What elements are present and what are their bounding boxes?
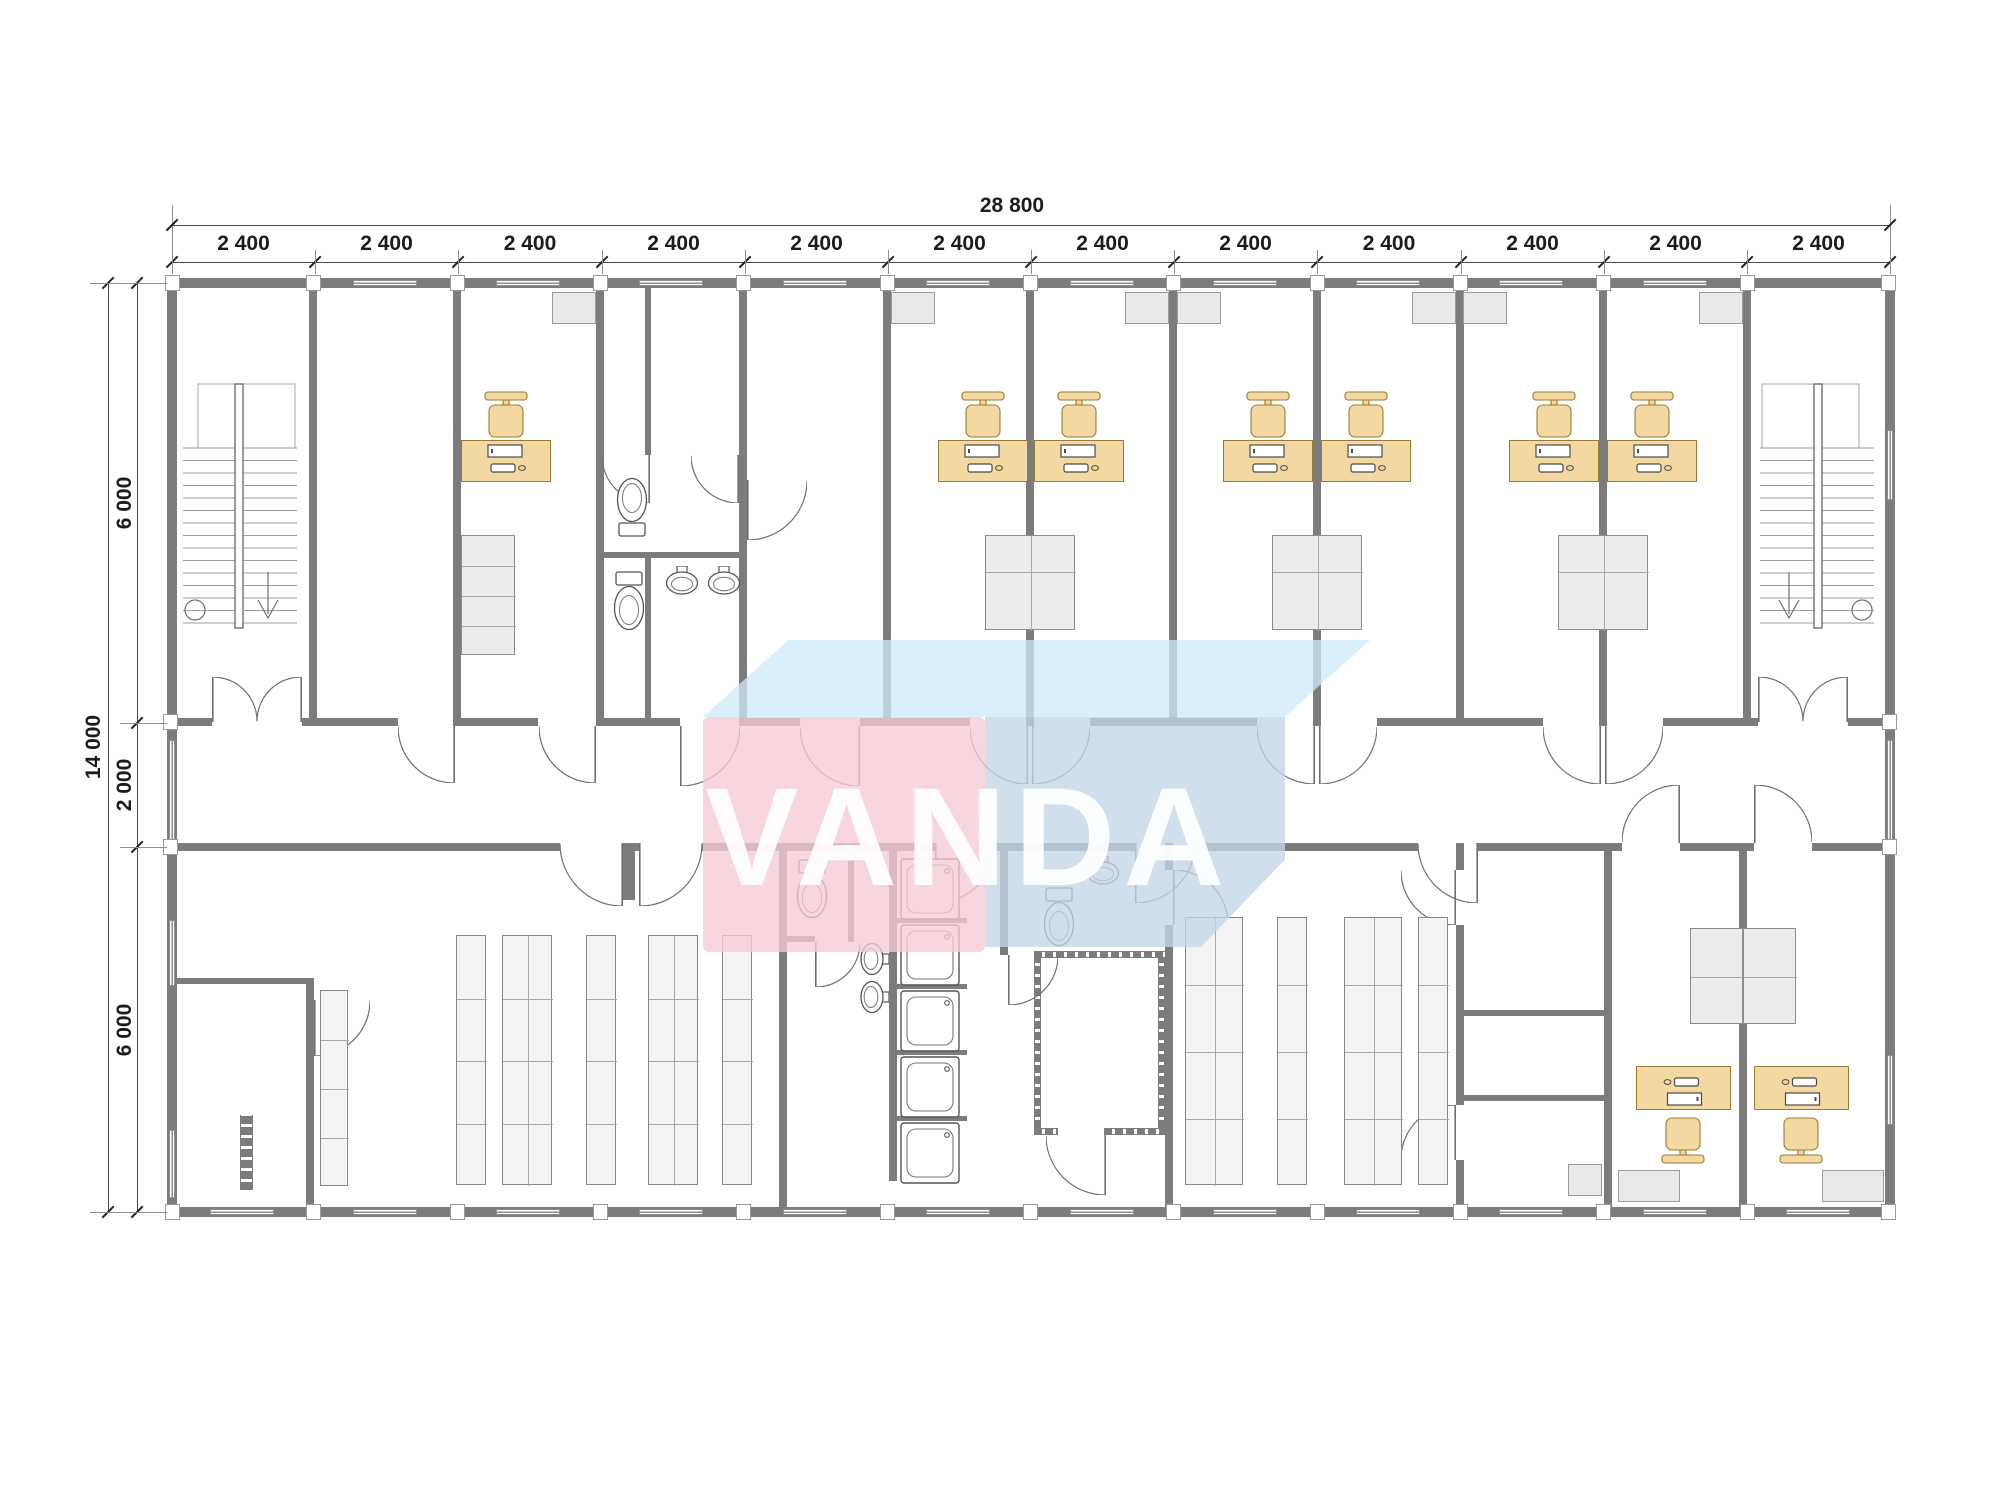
wall-joint: [1882, 714, 1897, 730]
dimension-line: [172, 225, 1890, 226]
office-chair: [1343, 391, 1389, 439]
storage-rack: [320, 990, 348, 1186]
rack-shelf: [1419, 1052, 1449, 1053]
wardrobe-divider: [1604, 536, 1605, 631]
wall: [623, 851, 635, 900]
desk: [1034, 440, 1124, 482]
rack-shelf: [1278, 985, 1308, 986]
wall: [739, 288, 747, 726]
window: [496, 280, 560, 286]
dimension-label: 2 400: [1473, 232, 1593, 258]
wall-joint: [1882, 839, 1897, 855]
window: [169, 920, 175, 986]
dimension-label: 2 400: [1043, 232, 1163, 258]
door-arc: [398, 726, 455, 783]
door-arc: [1046, 1135, 1106, 1195]
rack-shelf: [1419, 985, 1449, 986]
wall-joint: [306, 1204, 321, 1220]
wall: [596, 552, 747, 558]
ac-unit: [1463, 292, 1507, 324]
storage-rack: [456, 935, 486, 1185]
wall-joint: [1740, 1204, 1755, 1220]
storage-rack: [502, 935, 552, 1185]
wall-joint: [593, 275, 608, 291]
wall-joint: [165, 275, 180, 291]
wall-joint: [593, 1204, 608, 1220]
wall-joint: [880, 1204, 895, 1220]
hatched-wall: [1158, 958, 1165, 1128]
window: [639, 1209, 703, 1215]
rack-shelf: [503, 1061, 553, 1062]
rack-shelf: [1278, 1052, 1308, 1053]
wardrobe: [461, 535, 515, 655]
wardrobe-divider: [1318, 536, 1319, 631]
desk: [1509, 440, 1599, 482]
ac-unit: [1412, 292, 1456, 324]
wall: [645, 288, 651, 455]
storage-rack: [1277, 917, 1307, 1185]
rack-shelf: [649, 1061, 699, 1062]
rack-shelf: [503, 999, 553, 1000]
wardrobe-shelf: [1691, 977, 1744, 978]
wall-joint: [1023, 275, 1038, 291]
desk: [938, 440, 1028, 482]
wall: [167, 843, 560, 851]
wall: [306, 982, 314, 1217]
wardrobe: [1743, 928, 1796, 1024]
door-arc: [257, 677, 302, 722]
wardrobe-shelf: [1744, 977, 1797, 978]
window: [1213, 280, 1277, 286]
desk: [1607, 440, 1697, 482]
wall-joint: [450, 1204, 465, 1220]
wardrobe-shelf: [1273, 572, 1363, 573]
window: [1643, 1209, 1707, 1215]
window: [1213, 1209, 1277, 1215]
door-arc: [539, 726, 596, 783]
wall-joint: [306, 275, 321, 291]
window: [1499, 1209, 1563, 1215]
storage-rack: [722, 935, 752, 1185]
rack-shelf: [457, 1124, 487, 1125]
extension-line: [602, 250, 603, 274]
ac-unit: [1177, 292, 1221, 324]
dimension-label: 28 800: [952, 194, 1072, 220]
dimension-label: 2 000: [113, 725, 139, 845]
office-chair: [483, 391, 529, 439]
storage-rack: [648, 935, 698, 1185]
window: [496, 1209, 560, 1215]
door-arc: [747, 480, 807, 540]
storage-rack: [1344, 917, 1402, 1185]
rack-shelf: [723, 999, 753, 1000]
rack-shelf: [1186, 1119, 1244, 1120]
wall: [309, 288, 317, 726]
wall: [455, 718, 538, 726]
desk: [461, 440, 551, 482]
extension-line: [120, 847, 167, 848]
extension-line: [120, 1212, 167, 1213]
desk: [1321, 440, 1411, 482]
wardrobe: [1690, 928, 1743, 1024]
wall-joint: [1023, 1204, 1038, 1220]
wall-joint: [1740, 275, 1755, 291]
rack-shelf: [587, 1061, 617, 1062]
toilet: [613, 474, 651, 538]
storage-rack: [1185, 917, 1243, 1185]
window: [169, 740, 175, 840]
wall-joint: [736, 1204, 751, 1220]
wardrobe: [985, 535, 1075, 630]
door-arc: [1622, 785, 1680, 843]
wall: [1456, 288, 1464, 726]
dimension-label: 2 400: [757, 232, 877, 258]
wall: [623, 843, 639, 851]
wall: [1165, 925, 1173, 1217]
extension-line: [172, 250, 173, 274]
hatched-wall: [1034, 1128, 1058, 1135]
window: [1356, 280, 1420, 286]
sink: [859, 979, 889, 1015]
window: [1643, 280, 1707, 286]
ac-unit: [1822, 1170, 1884, 1202]
desk: [1223, 440, 1313, 482]
dimension-label: 2 400: [614, 232, 734, 258]
window: [639, 280, 703, 286]
office-chair: [1056, 391, 1102, 439]
hatched-wall: [1104, 1128, 1165, 1135]
window: [1887, 740, 1893, 840]
wall-joint: [1453, 275, 1468, 291]
window: [1887, 430, 1893, 500]
window: [353, 280, 417, 286]
rack-shelf: [457, 1061, 487, 1062]
dimension-label: 2 400: [1329, 232, 1449, 258]
floor-plan: VANDA 28 8002 4002 4002 4002 4002 4002 4…: [0, 0, 2000, 1500]
extension-line: [458, 250, 459, 274]
ac-unit: [1618, 1170, 1680, 1202]
office-chair: [1778, 1116, 1824, 1164]
wardrobe-shelf: [462, 626, 516, 627]
extension-line: [1604, 250, 1605, 274]
desk: [1754, 1066, 1849, 1110]
ac-unit: [1125, 292, 1169, 324]
rack-shelf: [587, 999, 617, 1000]
extension-line: [1747, 250, 1748, 274]
rack-shelf: [723, 1061, 753, 1062]
wall-joint: [1310, 1204, 1325, 1220]
door-arc: [212, 677, 257, 722]
shower-stall: [900, 1122, 960, 1184]
rack-shelf: [723, 1124, 753, 1125]
ac-unit: [1699, 292, 1743, 324]
desk: [1636, 1066, 1731, 1110]
wall: [1464, 1095, 1604, 1101]
extension-line: [1317, 250, 1318, 274]
wardrobe-divider: [1031, 536, 1032, 631]
wardrobe: [1558, 535, 1648, 630]
rack-shelf: [649, 999, 699, 1000]
rack-shelf: [321, 1040, 349, 1041]
dimension-label: 6 000: [113, 970, 139, 1090]
wardrobe-shelf: [462, 596, 516, 597]
window: [169, 1130, 175, 1198]
ac-unit: [1568, 1164, 1602, 1196]
watermark-text: VANDA: [705, 762, 1175, 912]
window: [783, 1209, 847, 1215]
storage-rack: [1418, 917, 1448, 1185]
rack-shelf: [1186, 1052, 1244, 1053]
door-arc: [560, 843, 623, 906]
staircase: [1757, 380, 1877, 648]
wall: [1743, 288, 1751, 726]
extension-line: [1174, 250, 1175, 274]
wall-joint: [1310, 275, 1325, 291]
wardrobe-shelf: [1559, 572, 1649, 573]
wall: [1456, 925, 1464, 1105]
wall-joint: [1453, 1204, 1468, 1220]
rack-shelf: [1345, 1119, 1403, 1120]
extension-line: [1890, 250, 1891, 274]
toilet: [610, 570, 648, 634]
wall: [1739, 843, 1747, 1217]
rack-shelf: [457, 999, 487, 1000]
extension-line: [888, 250, 889, 274]
rack-shelf: [321, 1138, 349, 1139]
wardrobe-shelf: [986, 572, 1076, 573]
wall: [453, 288, 461, 726]
door-arc: [1605, 726, 1663, 784]
wall: [596, 718, 680, 726]
wall-joint: [163, 714, 178, 730]
rack-shelf: [1345, 985, 1403, 986]
hatched-wall: [240, 1115, 253, 1190]
ac-unit: [891, 292, 935, 324]
wall-joint: [165, 1204, 180, 1220]
wall: [1464, 1010, 1604, 1016]
window: [1499, 280, 1563, 286]
office-chair: [1629, 391, 1675, 439]
wall-joint: [1881, 275, 1896, 291]
dimension-label: 2 400: [1616, 232, 1736, 258]
rack-shelf: [1345, 1052, 1403, 1053]
dimension-label: 2 400: [1759, 232, 1879, 258]
extension-line: [745, 250, 746, 274]
extension-line: [1031, 250, 1032, 274]
rack-shelf: [321, 1089, 349, 1090]
shower-stall: [900, 990, 960, 1052]
door-arc: [1754, 785, 1812, 843]
door-arc: [1758, 677, 1803, 722]
wall-joint: [1166, 1204, 1181, 1220]
dimension-label: 2 400: [470, 232, 590, 258]
window: [926, 1209, 990, 1215]
rack-shelf: [503, 1124, 553, 1125]
extension-line: [120, 283, 167, 284]
wall-joint: [880, 275, 895, 291]
dimension-label: 2 400: [184, 232, 304, 258]
rack-shelf: [649, 1124, 699, 1125]
sink: [664, 566, 700, 596]
dimension-label: 2 400: [327, 232, 447, 258]
window: [783, 280, 847, 286]
rack-shelf: [1419, 1119, 1449, 1120]
dimension-label: 14 000: [82, 687, 108, 807]
wall-joint: [1166, 275, 1181, 291]
door-arc: [1803, 677, 1848, 722]
window: [1786, 1209, 1850, 1215]
sink: [706, 566, 742, 596]
window: [1356, 1209, 1420, 1215]
staircase: [180, 380, 300, 648]
window: [1887, 1055, 1893, 1125]
wall-joint: [1881, 1204, 1896, 1220]
shower-stall: [900, 1056, 960, 1118]
extension-line: [315, 250, 316, 274]
wall-joint: [736, 275, 751, 291]
office-chair: [1245, 391, 1291, 439]
door-arc: [639, 843, 702, 906]
ac-unit: [552, 292, 596, 324]
door-arc: [691, 455, 739, 503]
extension-line: [1461, 250, 1462, 274]
dimension-label: 2 400: [900, 232, 1020, 258]
door-arc: [1319, 726, 1377, 784]
rack-shelf: [1186, 985, 1244, 986]
wall: [596, 288, 604, 726]
door-arc: [1543, 726, 1601, 784]
wardrobe: [1272, 535, 1362, 630]
storage-rack: [586, 935, 616, 1185]
wardrobe-shelf: [462, 566, 516, 567]
wall: [1604, 843, 1612, 1217]
dimension-label: 2 400: [1186, 232, 1306, 258]
extension-line: [120, 723, 167, 724]
window: [1070, 280, 1134, 286]
door-arc: [1008, 955, 1058, 1005]
window: [210, 1209, 274, 1215]
window: [1070, 1209, 1134, 1215]
office-chair: [1531, 391, 1577, 439]
wall: [1478, 843, 1622, 851]
window: [353, 1209, 417, 1215]
window: [926, 280, 990, 286]
rack-shelf: [1278, 1119, 1308, 1120]
dimension-line: [108, 283, 109, 1212]
wall-joint: [1596, 1204, 1611, 1220]
dimension-label: 6 000: [113, 443, 139, 563]
rack-shelf: [587, 1124, 617, 1125]
wall-joint: [450, 275, 465, 291]
watermark-top-face: [703, 640, 1370, 717]
wall: [1599, 288, 1607, 726]
office-chair: [960, 391, 1006, 439]
wall: [172, 978, 314, 984]
office-chair: [1660, 1116, 1706, 1164]
wall-joint: [1596, 275, 1611, 291]
